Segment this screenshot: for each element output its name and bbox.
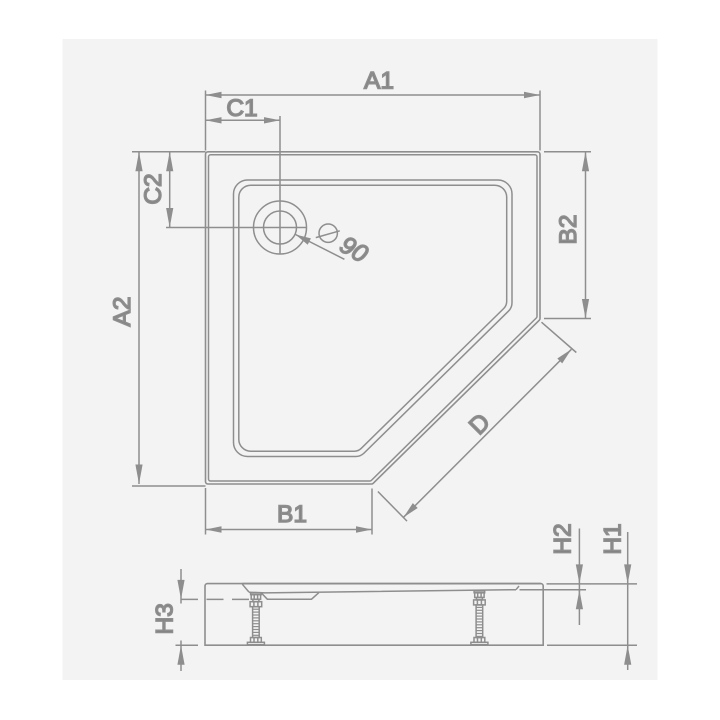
svg-text:H1: H1	[600, 523, 627, 554]
svg-text:A1: A1	[364, 68, 394, 95]
svg-text:H2: H2	[550, 523, 577, 554]
svg-text:C2: C2	[140, 173, 167, 204]
svg-text:C1: C1	[226, 95, 257, 122]
svg-text:B1: B1	[277, 501, 307, 528]
svg-text:H3: H3	[152, 603, 179, 634]
svg-text:A2: A2	[109, 297, 136, 327]
svg-text:B2: B2	[555, 215, 582, 245]
